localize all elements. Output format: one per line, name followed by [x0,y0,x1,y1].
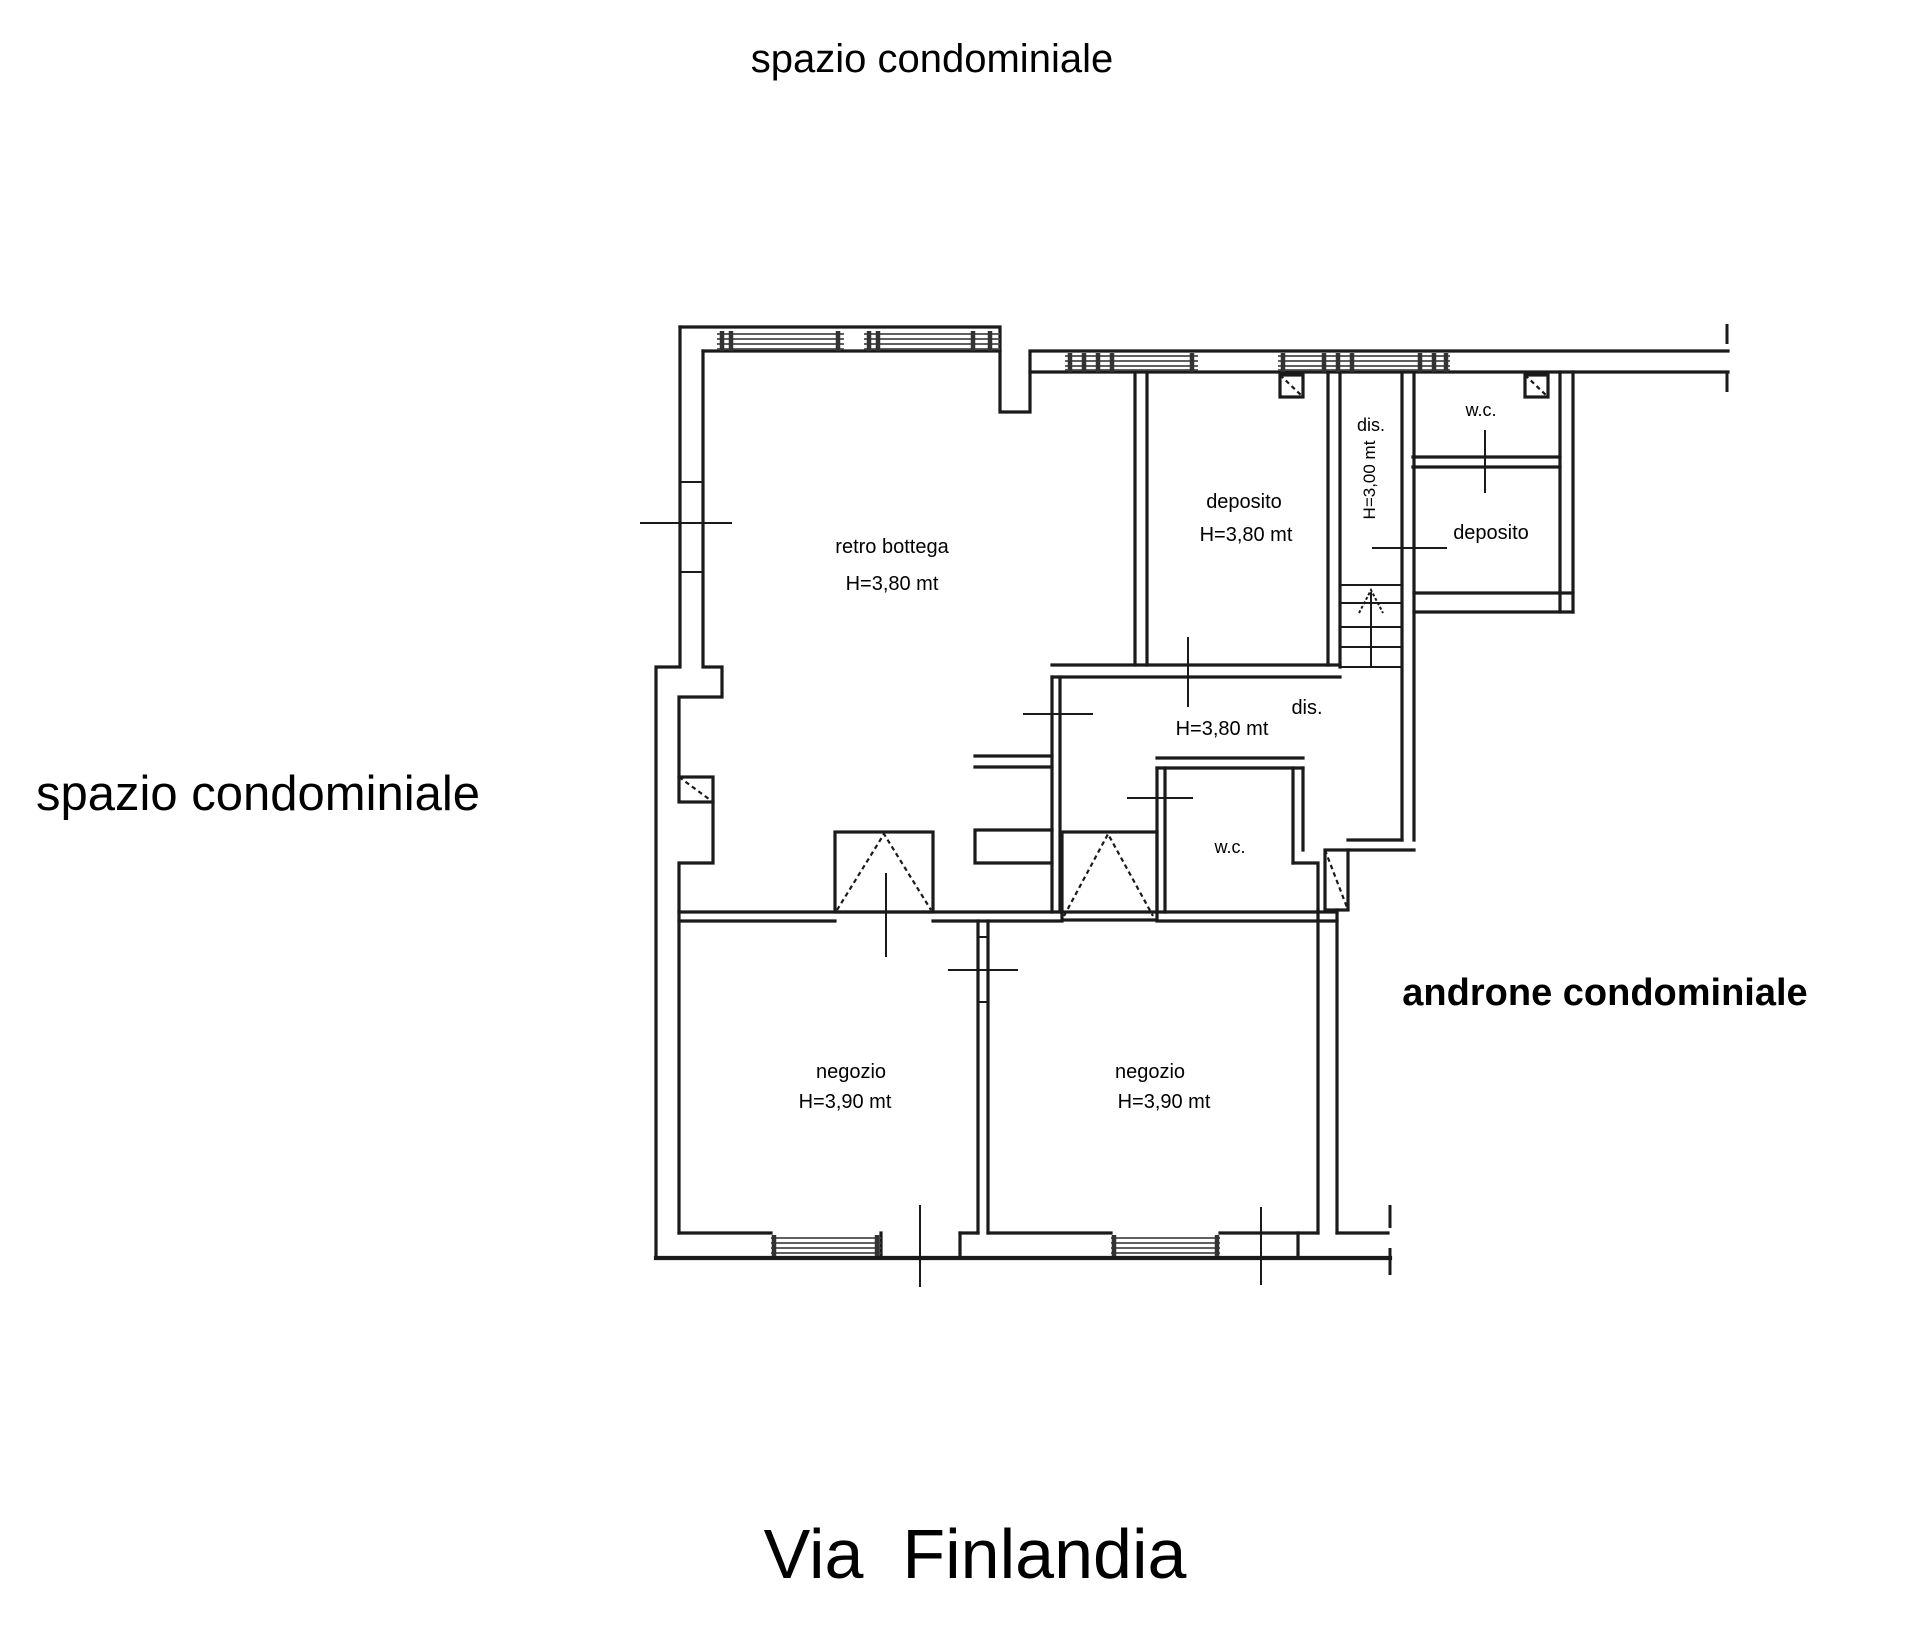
street-label: Via Finlandia [764,1515,1187,1593]
room-label-deposito-right: deposito [1453,522,1529,544]
door-negozio-right [1062,832,1157,920]
floor-plan-page: spazio condominiale spazio condominiale … [0,0,1920,1625]
area-label-androne: androne condominiale [1402,972,1807,1014]
area-label-top: spazio condominiale [751,37,1113,81]
room-height-negozio-left: H=3,90 mt [799,1091,892,1113]
room-label-negozio-right: negozio [1115,1061,1185,1083]
room-label-wc-top: w.c. [1464,400,1496,420]
room-label-retro-bottega: retro bottega [835,536,949,558]
exterior-walls [656,327,1728,1258]
room-label-negozio-left: negozio [816,1061,886,1083]
room-height-negozio-right: H=3,90 mt [1118,1091,1211,1113]
room-height-deposito-top: H=3,80 mt [1200,524,1293,546]
floor-plan-drawing: spazio condominiale spazio condominiale … [0,0,1920,1625]
tick-marks [640,324,1727,1287]
room-label-dis-mid: dis. [1291,697,1322,719]
door-negozio-left [835,832,933,912]
room-label-dis-top: dis. [1357,415,1385,435]
room-height-dis-mid: H=3,80 mt [1176,718,1269,740]
room-label-wc-mid: w.c. [1213,837,1245,857]
staircase [1340,585,1402,667]
room-label-deposito-top: deposito [1206,491,1282,513]
area-label-left: spazio condominiale [36,767,480,821]
room-height-retro-bottega: H=3,80 mt [846,573,939,595]
room-height-dis-top-vertical: H=3,00 mt [1360,440,1379,519]
